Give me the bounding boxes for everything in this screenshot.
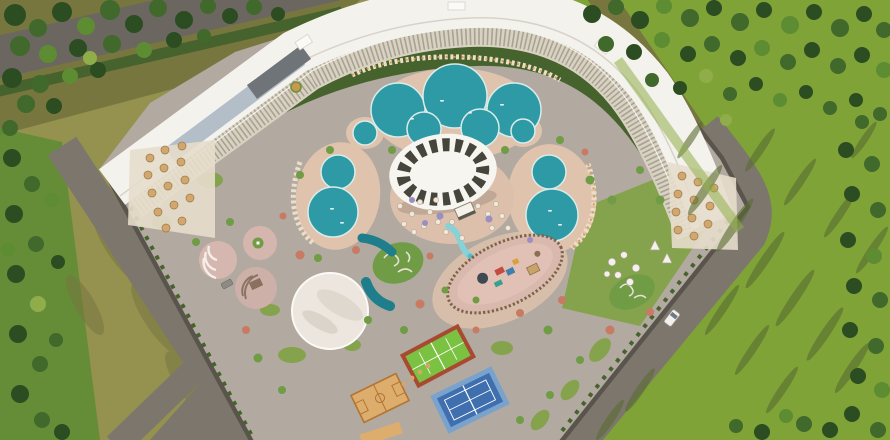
picnic-circle (243, 226, 277, 260)
stage-circle (235, 267, 277, 309)
aerial-resort-render (0, 0, 890, 440)
event-dome-plaza (292, 273, 368, 349)
round-pool-west (353, 121, 377, 145)
left-terrace-cabanas (128, 140, 215, 238)
round-pool-east (511, 119, 535, 143)
amphitheater (199, 241, 237, 279)
rooftop-garden (291, 82, 301, 92)
render-canvas (0, 0, 890, 440)
